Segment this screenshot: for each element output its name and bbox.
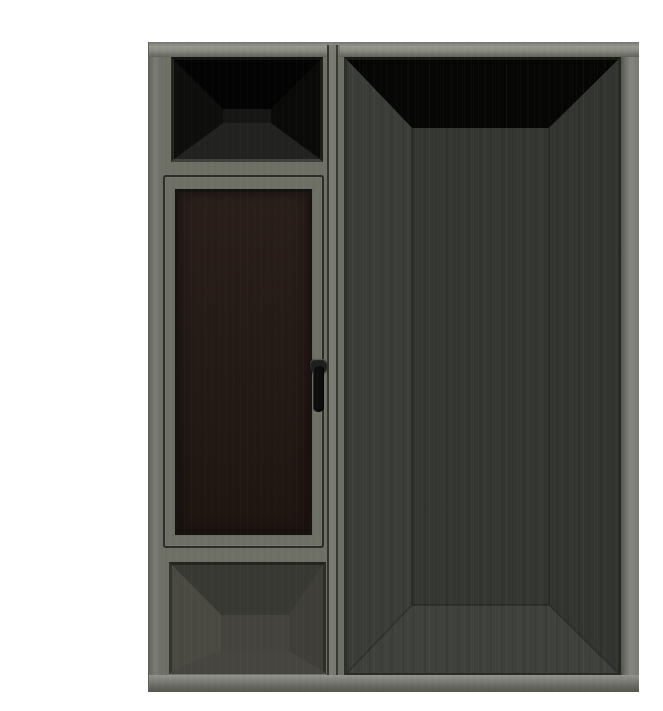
frame-left-jamb [149, 57, 163, 675]
frame-head-rail [149, 42, 639, 57]
render-canvas [0, 0, 663, 711]
bottom-back-wall-face [221, 615, 289, 651]
transom-back-wall-face [223, 109, 271, 123]
mullion-seam [327, 45, 340, 675]
casement-glass-pane [178, 192, 309, 532]
bottom-opening [169, 562, 326, 674]
door-window-frame-unit [148, 42, 638, 692]
door-opening [344, 57, 621, 675]
transom-interior [174, 60, 320, 159]
door-left-wall-face [347, 60, 412, 673]
frame-bottom-sill [149, 675, 639, 692]
frame-right-jamb [621, 57, 639, 675]
door-right-wall-face [549, 60, 618, 673]
bottom-opening-interior [172, 565, 323, 671]
door-back-wall-face [412, 128, 549, 605]
window-handle-lever [313, 366, 324, 412]
door-opening-interior [347, 60, 618, 673]
transom-opening [171, 57, 323, 162]
